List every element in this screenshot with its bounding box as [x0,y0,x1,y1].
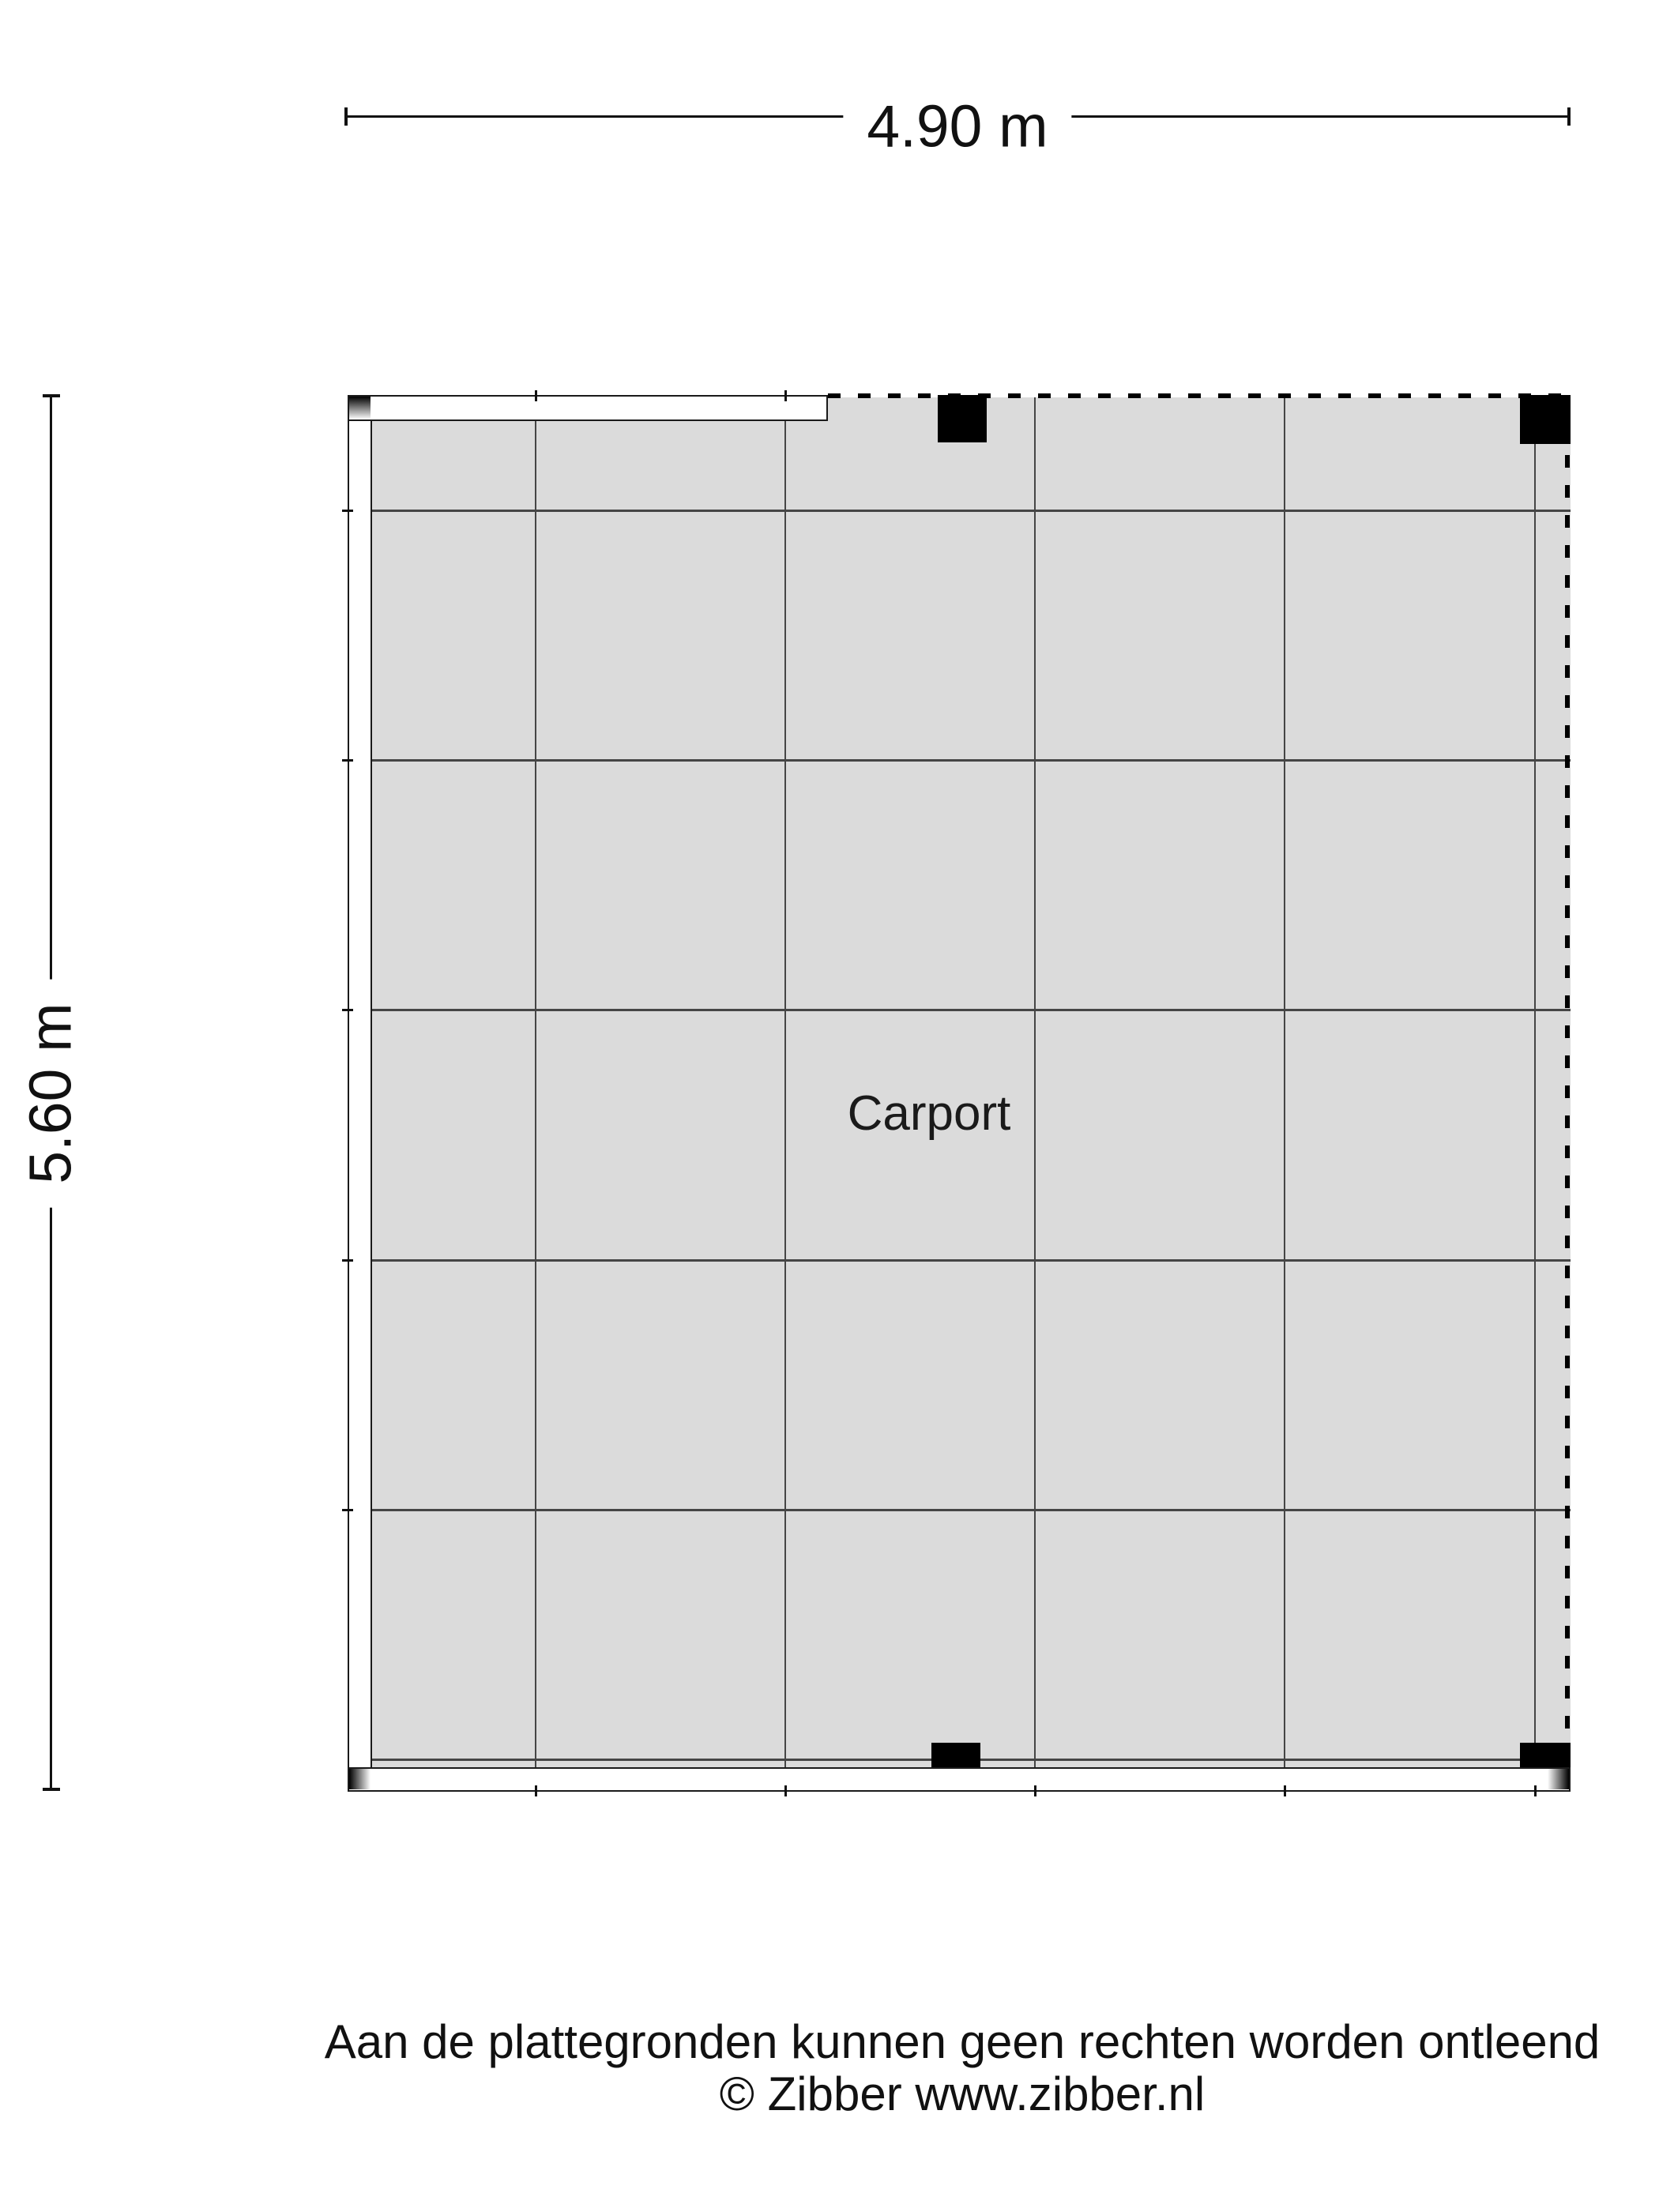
post [931,1743,980,1767]
grid-tick-left [342,1009,353,1011]
grid-tick-left [342,1259,353,1262]
grid-line-horizontal [372,1509,1571,1511]
grid-line-vertical [535,421,536,1767]
grid-line-horizontal [372,1259,1571,1262]
grid-tick-top [784,390,787,401]
grid-tick-bottom [1534,1785,1537,1796]
grid-line-horizontal [372,1009,1571,1011]
left-dimension-label: 5.60 m [10,979,92,1207]
dashed-boundary-right [1565,395,1570,1767]
grid-tick-bottom [1284,1785,1286,1796]
post [938,395,987,442]
footer: Aan de plattegronden kunnen geen rechten… [325,2016,1601,2120]
grid-tick-bottom [784,1785,787,1796]
grid-line-vertical [1284,397,1285,1767]
grid-tick-bottom [535,1785,537,1796]
copyright-text: © Zibber www.zibber.nl [325,2068,1601,2120]
grid-line-horizontal [372,510,1571,512]
wall-bottom [348,1767,1571,1792]
left-dimension-tick-bottom [43,1788,60,1791]
floor-area [372,397,1571,1767]
grid-tick-left [342,1509,353,1511]
grid-line-vertical [1034,397,1036,1767]
wall-top [348,395,828,421]
grid-tick-top [535,390,537,401]
disclaimer-text: Aan de plattegronden kunnen geen rechten… [325,2016,1601,2068]
top-dimension-label: 4.90 m [843,86,1071,167]
grid-line-horizontal [372,759,1571,762]
grid-line-vertical [784,397,786,1767]
wall-left [348,395,372,1791]
grid-tick-left [342,759,353,762]
post [1520,395,1571,444]
room-label: Carport [848,1089,1011,1138]
grid-tick-bottom [1034,1785,1036,1796]
grid-line-vertical [1534,397,1536,1767]
top-dimension-tick-right [1567,107,1571,126]
post [1520,1743,1571,1767]
left-dimension-tick-top [43,394,60,397]
grid-tick-left [342,510,353,512]
floorplan-page: 4.90 m 5.60 m Carport Aan de plattegrond… [0,0,1659,2212]
top-dimension-tick-left [344,107,348,126]
